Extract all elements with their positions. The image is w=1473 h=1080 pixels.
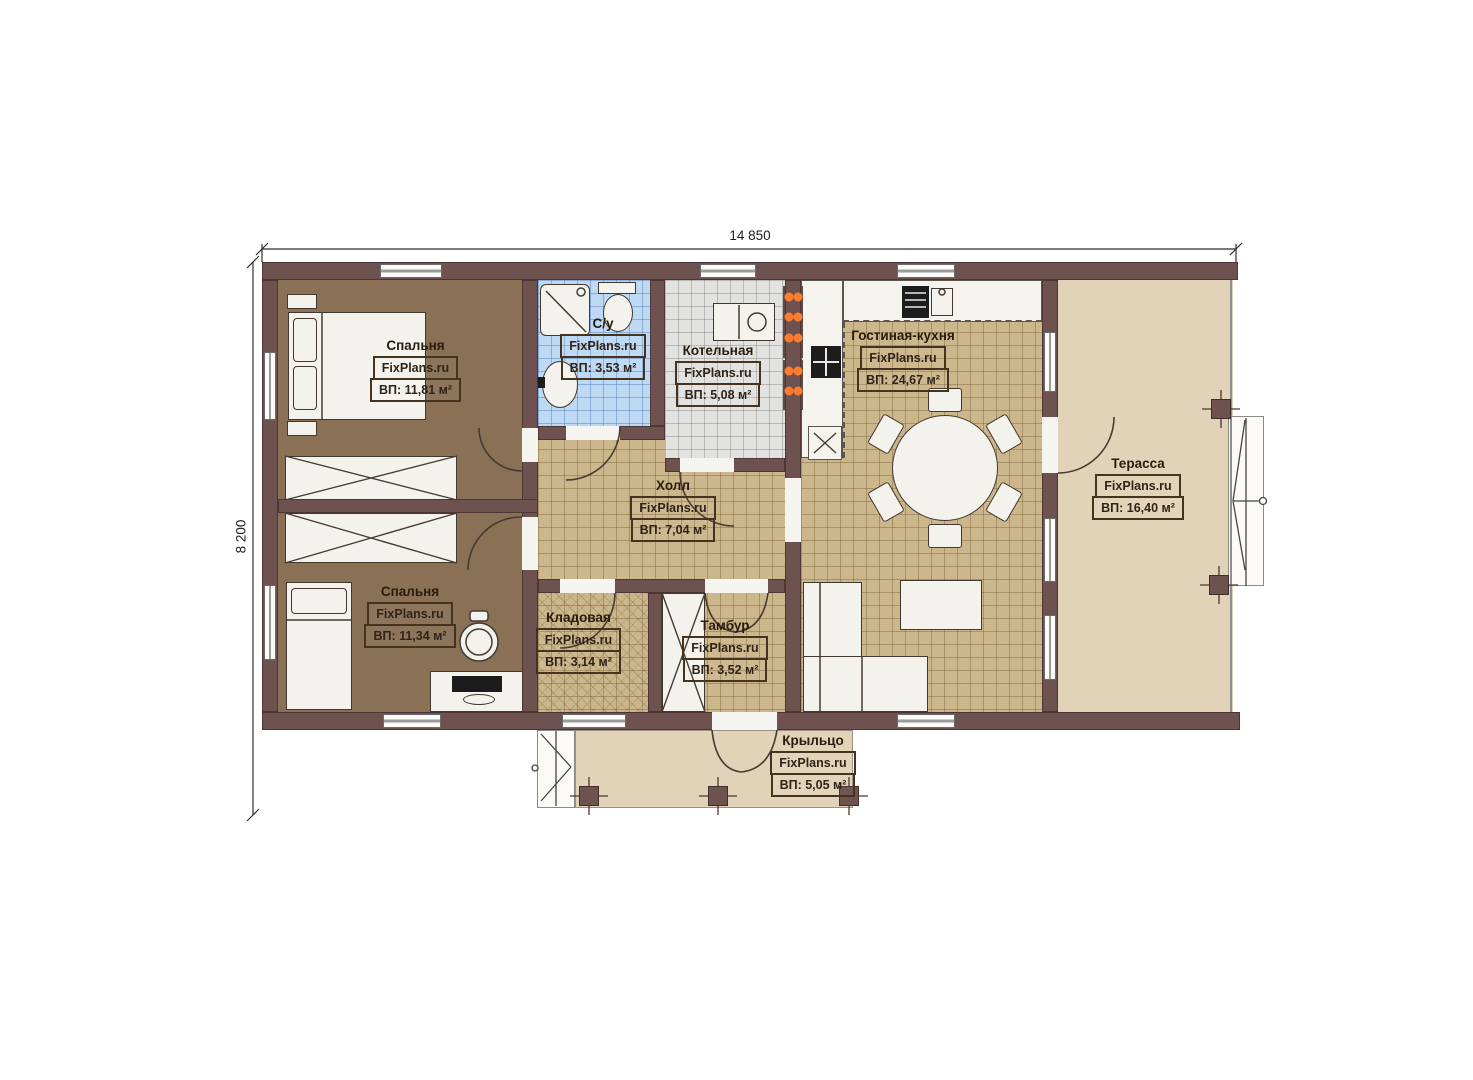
tv-stand: [463, 694, 495, 705]
area-box: ВП: 5,05 м²: [771, 773, 856, 797]
room-label-storage: Кладовая FixPlans.ru ВП: 3,14 м²: [526, 610, 631, 674]
room-label-hall: Холл FixPlans.ru ВП: 7,04 м²: [618, 478, 728, 542]
nightstand: [287, 421, 317, 436]
stove: [902, 286, 929, 318]
post: [579, 786, 599, 806]
post: [1211, 399, 1231, 419]
room-label-bathroom: С/у FixPlans.ru ВП: 3,53 м²: [548, 316, 658, 380]
room-label-living: Гостиная-кухня FixPlans.ru ВП: 24,67 м²: [828, 328, 978, 392]
pillow: [293, 366, 317, 410]
wall-storage-right: [648, 593, 662, 712]
door-gap: [560, 579, 615, 593]
watermark-box: FixPlans.ru: [860, 346, 945, 370]
room-name: Тамбур: [701, 618, 750, 633]
window: [562, 714, 626, 728]
door-gap: [705, 579, 768, 593]
stairs-right: [1228, 416, 1264, 586]
stairs-left: [537, 730, 575, 808]
area-box: ВП: 11,81 м²: [370, 378, 461, 402]
room-name: С/у: [592, 316, 613, 331]
pillow: [293, 318, 317, 362]
area-box: ВП: 5,08 м²: [676, 383, 761, 407]
door-gap: [522, 517, 538, 570]
room-name: Котельная: [683, 343, 754, 358]
window: [380, 264, 442, 278]
room-label-bedroom1: Спальня FixPlans.ru ВП: 11,81 м²: [328, 338, 503, 402]
terrace-edge-line: [1230, 280, 1232, 712]
window: [1044, 332, 1056, 392]
room-label-boiler: Котельная FixPlans.ru ВП: 5,08 м²: [658, 343, 778, 407]
wardrobe: [285, 456, 457, 500]
kitchen-cabinet: [808, 426, 842, 460]
room-name: Крыльцо: [782, 733, 843, 748]
window: [264, 352, 276, 420]
door-gap: [1042, 417, 1058, 473]
window: [383, 714, 441, 728]
dining-table: [892, 415, 998, 521]
room-label-porch: Крыльцо FixPlans.ru ВП: 5,05 м²: [758, 733, 868, 797]
door-gap: [522, 428, 538, 462]
chair: [928, 524, 962, 548]
door-gap: [566, 426, 620, 440]
pillow: [291, 588, 347, 614]
watermark-box: FixPlans.ru: [770, 751, 855, 775]
room-name: Холл: [656, 478, 690, 493]
window: [1044, 615, 1056, 680]
sofa-chaise: [803, 656, 928, 712]
watermark-box: FixPlans.ru: [373, 356, 458, 380]
kitchen-sink: [931, 288, 953, 316]
post: [708, 786, 728, 806]
floor-plan: 14 850 8 200 Спальня FixPlans.ru ВП: 11,…: [0, 0, 1473, 1080]
area-box: ВП: 16,40 м²: [1092, 496, 1184, 520]
kitchen-zone-dash: [843, 320, 1042, 322]
area-box: ВП: 3,14 м²: [536, 650, 621, 674]
tv: [452, 676, 502, 692]
watermark-box: FixPlans.ru: [630, 496, 715, 520]
dimension-height: 8 200: [234, 497, 249, 577]
area-box: ВП: 7,04 м²: [631, 518, 716, 542]
watermark-box: FixPlans.ru: [1095, 474, 1180, 498]
room-name: Терасса: [1111, 456, 1165, 471]
toilet-tank: [598, 282, 636, 294]
area-box: ВП: 3,52 м²: [683, 658, 768, 682]
post: [1209, 575, 1229, 595]
watermark-box: FixPlans.ru: [536, 628, 621, 652]
room-name: Спальня: [381, 584, 439, 599]
coffee-table: [900, 580, 982, 630]
window: [700, 264, 756, 278]
room-label-vestibule: Тамбур FixPlans.ru ВП: 3,52 м²: [674, 618, 776, 682]
watermark-box: FixPlans.ru: [675, 361, 760, 385]
watermark-box: FixPlans.ru: [682, 636, 767, 660]
wall-bedroom-divider: [278, 499, 538, 513]
room-label-bedroom2: Спальня FixPlans.ru ВП: 11,34 м²: [350, 584, 470, 648]
window: [1044, 518, 1056, 582]
door-gap: [785, 478, 801, 542]
nightstand: [287, 294, 317, 309]
dimension-width: 14 850: [262, 228, 1238, 243]
washing-machine: [713, 303, 775, 341]
window: [897, 714, 955, 728]
area-box: ВП: 3,53 м²: [561, 356, 646, 380]
area-box: ВП: 24,67 м²: [857, 368, 949, 392]
room-label-terrace: Терасса FixPlans.ru ВП: 16,40 м²: [1082, 456, 1194, 520]
room-name: Гостиная-кухня: [851, 328, 954, 343]
watermark-box: FixPlans.ru: [367, 602, 452, 626]
room-name: Спальня: [386, 338, 444, 353]
area-box: ВП: 11,34 м²: [364, 624, 455, 648]
door-gap: [680, 458, 734, 472]
window: [897, 264, 955, 278]
room-name: Кладовая: [546, 610, 611, 625]
window: [264, 585, 276, 660]
wardrobe: [285, 513, 457, 563]
watermark-box: FixPlans.ru: [560, 334, 645, 358]
entry-door-gap: [712, 712, 777, 730]
